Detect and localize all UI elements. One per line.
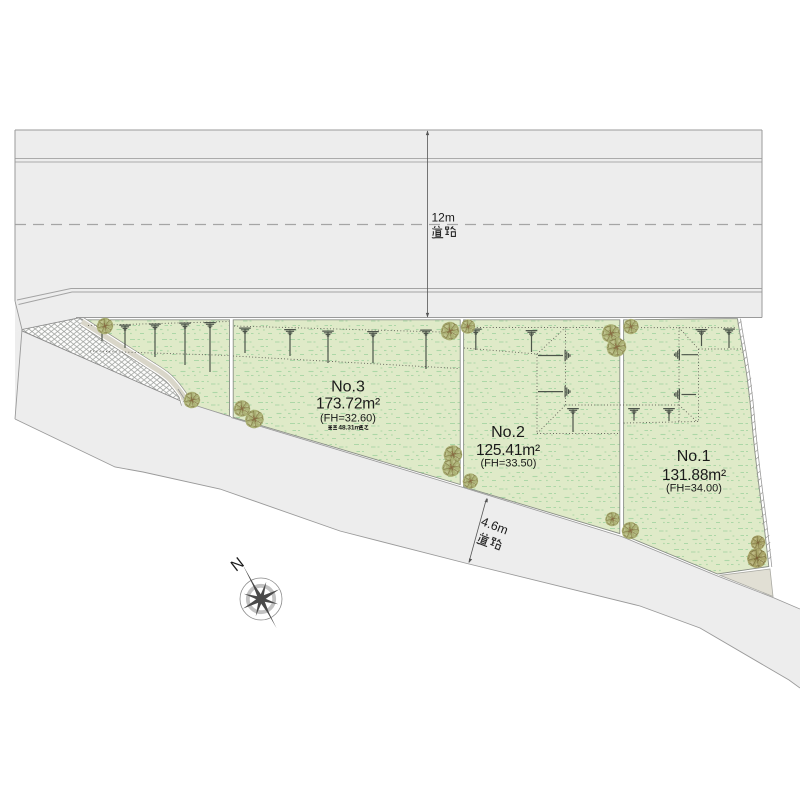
svg-text:125.41m²: 125.41m² — [476, 442, 540, 459]
svg-text:48.31m²: 48.31m² — [338, 425, 363, 432]
svg-text:No.2: No.2 — [491, 424, 525, 441]
svg-text:12m: 12m — [432, 211, 455, 225]
svg-text:(FH=32.60): (FH=32.60) — [320, 413, 376, 425]
svg-text:(FH=34.00): (FH=34.00) — [666, 483, 722, 495]
svg-text:No.3: No.3 — [331, 379, 365, 396]
svg-text:173.72m²: 173.72m² — [316, 396, 380, 413]
svg-text:No.1: No.1 — [677, 448, 711, 465]
svg-text:131.88m²: 131.88m² — [662, 467, 726, 484]
svg-text:(FH=33.50): (FH=33.50) — [481, 458, 537, 470]
